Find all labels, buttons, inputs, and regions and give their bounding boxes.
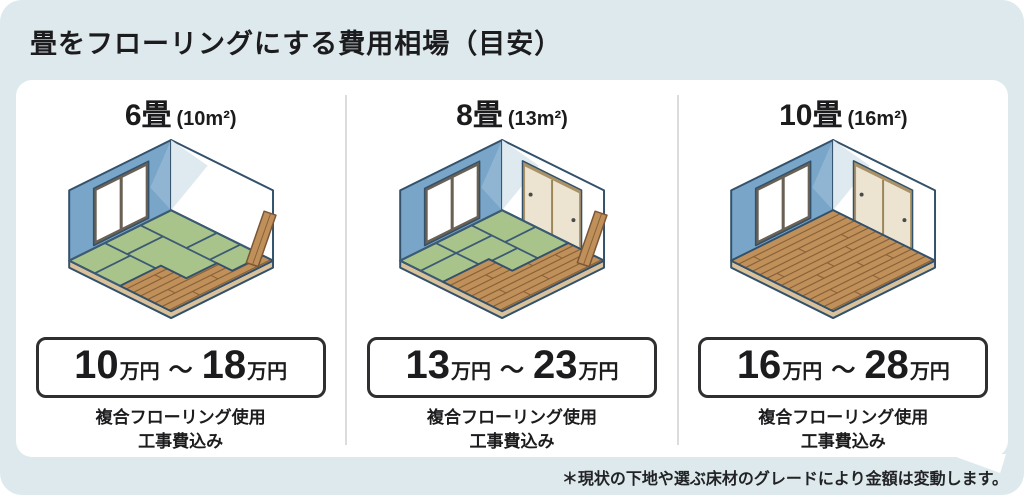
price-box: 16万円～28万円 (698, 337, 988, 398)
note-material: 複合フローリング使用 (758, 406, 928, 430)
isometric-room (372, 136, 652, 324)
price-notes: 複合フローリング使用 工事費込み (96, 406, 266, 454)
room-illustration (41, 136, 321, 324)
price-min: 13 (405, 343, 450, 387)
price-unit: 万円 (910, 361, 950, 383)
panel-header: 10畳 (16m²) (779, 90, 907, 134)
room-illustration (372, 136, 652, 324)
cost-comparison-card: 6畳 (10m²) 10万円～18万円 複合フローリング使用 工事費込み 8畳 … (16, 80, 1008, 457)
panel-header: 6畳 (10m²) (125, 90, 237, 134)
price-notes: 複合フローリング使用 工事費込み (427, 406, 597, 454)
page-title: 畳をフローリングにする費用相場（目安） (30, 22, 562, 61)
price-box: 10万円～18万円 (36, 337, 326, 398)
isometric-room (41, 136, 321, 324)
panel-10jo: 10畳 (16m²) 16万円～28万円 複合フローリング使用 工事費込み (679, 80, 1008, 457)
room-area-label: (16m²) (848, 108, 908, 131)
note-construction: 工事費込み (427, 430, 597, 454)
price-min: 10 (74, 343, 119, 387)
door-handle (529, 193, 533, 197)
price-max: 28 (864, 343, 909, 387)
room-size-label: 6畳 (125, 90, 172, 134)
price-unit: 万円 (782, 361, 822, 383)
note-construction: 工事費込み (758, 430, 928, 454)
room-illustration (703, 136, 983, 324)
room-area-label: (13m²) (508, 108, 568, 131)
note-material: 複合フローリング使用 (96, 406, 266, 430)
panel-6jo: 6畳 (10m²) 10万円～18万円 複合フローリング使用 工事費込み (16, 80, 345, 457)
note-material: 複合フローリング使用 (427, 406, 597, 430)
price-max: 18 (202, 343, 247, 387)
tilde: ～ (169, 357, 193, 384)
room-size-label: 10畳 (779, 90, 842, 134)
footnote: ＊現状の下地や選ぶ床材のグレードにより金額は変動します。 (562, 465, 1008, 489)
panel-header: 8畳 (13m²) (456, 90, 568, 134)
door-handle (903, 218, 907, 222)
price-box: 13万円～23万円 (367, 337, 657, 398)
isometric-room (703, 136, 983, 324)
price-unit: 万円 (578, 361, 618, 383)
note-construction: 工事費込み (96, 430, 266, 454)
price-notes: 複合フローリング使用 工事費込み (758, 406, 928, 454)
price-unit: 万円 (247, 361, 287, 383)
room-area-label: (10m²) (177, 108, 237, 131)
door-handle (860, 193, 864, 197)
price-unit: 万円 (451, 361, 491, 383)
door-handle (571, 218, 575, 222)
tilde: ～ (831, 357, 855, 384)
price-min: 16 (737, 343, 782, 387)
infographic-canvas: 畳をフローリングにする費用相場（目安） 6畳 (10m²) 10万円～18万円 … (0, 0, 1024, 495)
price-unit: 万円 (120, 361, 160, 383)
room-size-label: 8畳 (456, 90, 503, 134)
panel-8jo: 8畳 (13m²) 13万円～23万円 複合フローリング使用 工事費込み (347, 80, 676, 457)
tilde: ～ (500, 357, 524, 384)
price-max: 23 (533, 343, 578, 387)
